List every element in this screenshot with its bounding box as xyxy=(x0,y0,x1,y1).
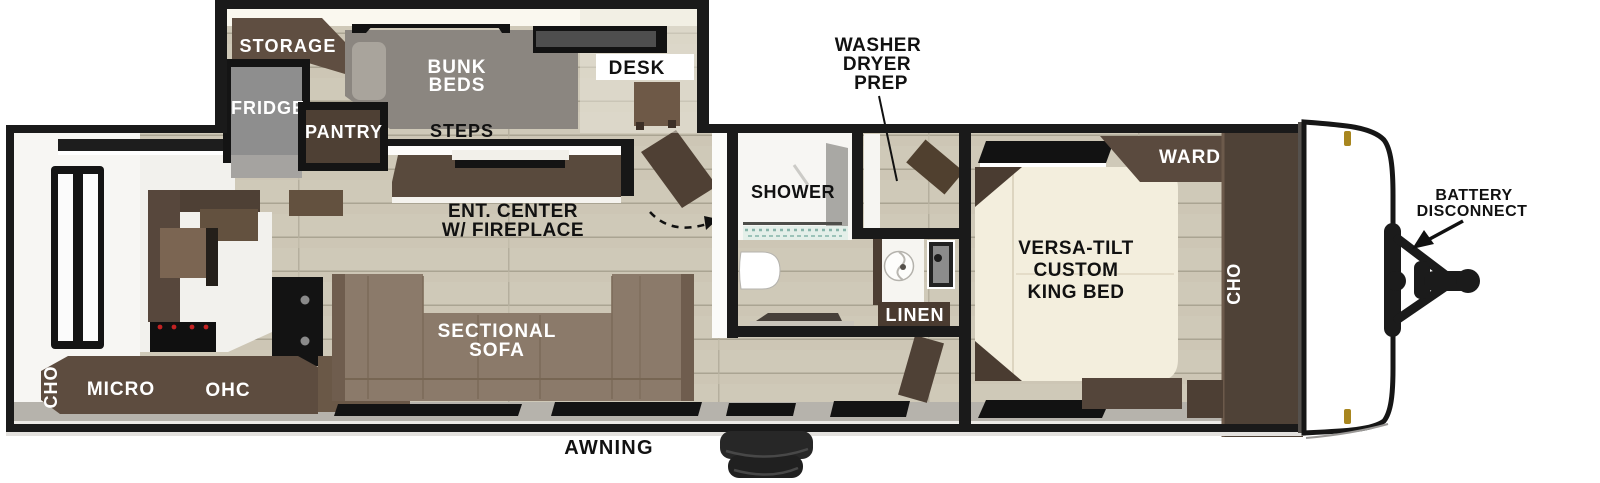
svg-text:AWNING: AWNING xyxy=(564,437,653,459)
svg-text:PREP: PREP xyxy=(854,73,908,94)
svg-text:DISCONNECT: DISCONNECT xyxy=(1417,203,1528,220)
svg-text:SOFA: SOFA xyxy=(469,340,525,361)
svg-text:CHO: CHO xyxy=(41,366,61,409)
svg-text:BATTERY: BATTERY xyxy=(1435,187,1512,204)
svg-text:DESK: DESK xyxy=(609,58,666,79)
svg-text:DRYER: DRYER xyxy=(843,54,911,75)
svg-text:CUSTOM: CUSTOM xyxy=(1034,260,1119,281)
svg-text:VERSA-TILT: VERSA-TILT xyxy=(1018,238,1133,259)
svg-text:SHOWER: SHOWER xyxy=(751,182,835,202)
svg-text:WASHER: WASHER xyxy=(835,35,921,56)
svg-text:SECTIONAL: SECTIONAL xyxy=(438,321,557,342)
svg-text:STEPS: STEPS xyxy=(430,121,494,141)
svg-text:W/ FIREPLACE: W/ FIREPLACE xyxy=(442,220,584,241)
svg-text:CHO: CHO xyxy=(1224,263,1244,305)
svg-text:FRIDGE: FRIDGE xyxy=(231,98,305,118)
svg-text:WARD: WARD xyxy=(1159,147,1221,168)
svg-text:LINEN: LINEN xyxy=(886,305,945,325)
svg-text:BEDS: BEDS xyxy=(429,75,486,96)
svg-text:ENT. CENTER: ENT. CENTER xyxy=(448,201,578,222)
svg-text:MICRO: MICRO xyxy=(87,379,155,400)
svg-text:PANTRY: PANTRY xyxy=(305,122,383,142)
svg-text:KING BED: KING BED xyxy=(1028,282,1125,303)
svg-text:OHC: OHC xyxy=(205,380,250,401)
svg-text:STORAGE: STORAGE xyxy=(239,36,336,56)
